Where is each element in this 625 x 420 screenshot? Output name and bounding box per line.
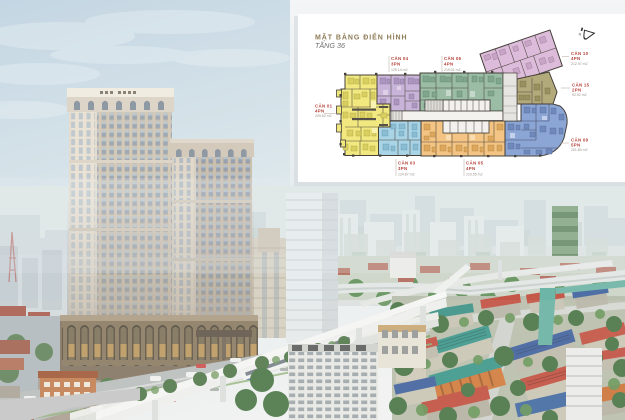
svg-text:201.80 m2: 201.80 m2: [571, 148, 588, 152]
svg-text:2PN: 2PN: [572, 88, 581, 93]
svg-text:CĂN 03: CĂN 03: [398, 161, 416, 166]
svg-text:212.97 m2: 212.97 m2: [571, 62, 588, 66]
svg-text:209.62 m2: 209.62 m2: [315, 114, 332, 118]
svg-text:210.55 m2: 210.55 m2: [466, 172, 483, 176]
svg-text:CĂN 06: CĂN 06: [444, 56, 462, 61]
svg-text:4PN: 4PN: [315, 108, 324, 113]
svg-text:4PN: 4PN: [444, 62, 453, 67]
svg-text:219.01 m2: 219.01 m2: [444, 68, 461, 72]
svg-text:92.92 m2: 92.92 m2: [572, 93, 587, 97]
svg-text:4PN: 4PN: [571, 56, 580, 61]
svg-text:TẦNG 36: TẦNG 36: [315, 40, 345, 50]
svg-text:125.14 m2: 125.14 m2: [391, 68, 408, 72]
svg-text:CĂN 04: CĂN 04: [391, 56, 409, 61]
svg-text:3PN: 3PN: [391, 62, 400, 67]
svg-text:3PN: 3PN: [398, 166, 407, 171]
svg-text:5PN: 5PN: [571, 143, 580, 148]
svg-text:CĂN 05: CĂN 05: [466, 161, 484, 166]
svg-text:4PN: 4PN: [466, 166, 475, 171]
svg-text:124.87 m2: 124.87 m2: [398, 172, 415, 176]
